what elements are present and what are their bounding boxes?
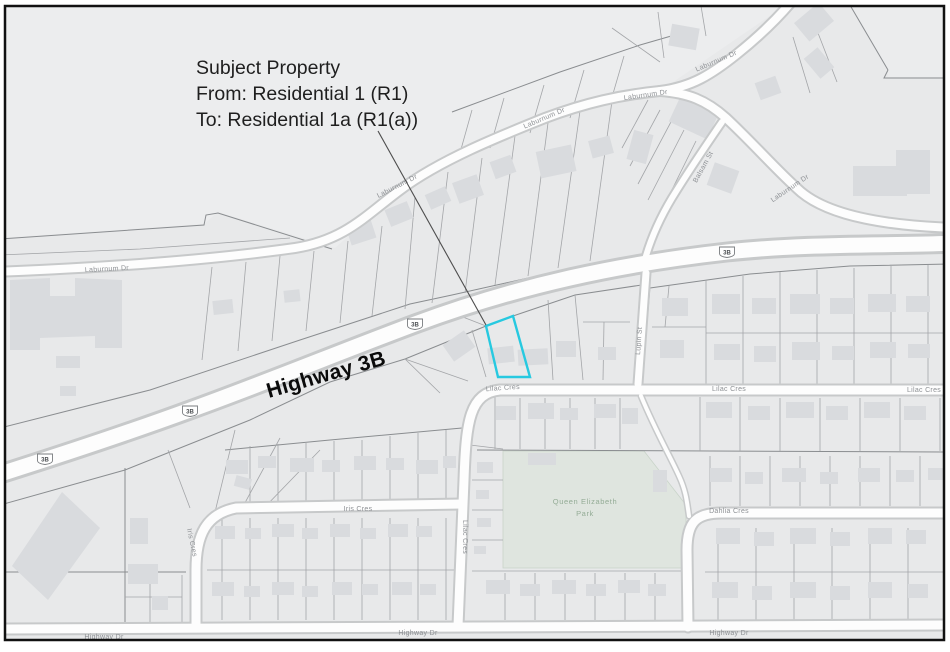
street-label-iris-horizontal: Iris Cres: [344, 506, 373, 513]
shield-text-4: 3B: [723, 250, 731, 256]
annotation-line-2: From: Residential 1 (R1): [196, 83, 408, 105]
street-label-highway-dr-mid: Highway Dr: [398, 630, 438, 637]
shield-text-3: 3B: [411, 322, 419, 328]
shield-text-1: 3B: [41, 457, 49, 463]
street-label-lilac-vertical: Lilac Cres: [461, 520, 468, 554]
highway-shield-3: 3B: [408, 319, 423, 330]
park-label-line1: Queen Elizabeth: [553, 497, 617, 506]
street-label-dahlia: Dahlia Cres: [709, 508, 749, 515]
zoning-map: Laburnum Dr Laburnum Dr Laburnum Dr Labu…: [0, 0, 950, 652]
highway-shield-1: 3B: [38, 454, 53, 465]
street-label-highway-dr-east: Highway Dr: [709, 630, 749, 637]
highway-shield-2: 3B: [183, 406, 198, 417]
shield-text-2: 3B: [186, 409, 194, 415]
street-label-lilac-mid: Lilac Cres: [712, 386, 746, 393]
highway-shield-4: 3B: [720, 247, 735, 258]
annotation-line-3: To: Residential 1a (R1(a)): [196, 109, 418, 131]
map-content: Laburnum Dr Laburnum Dr Laburnum Dr Labu…: [0, 0, 950, 652]
annotation-line-1: Subject Property: [196, 57, 340, 79]
park-label-line2: Park: [576, 509, 594, 518]
street-label-lilac-east: Lilac Cres: [907, 387, 941, 394]
zoning-map-page: Laburnum Dr Laburnum Dr Laburnum Dr Labu…: [0, 0, 950, 652]
